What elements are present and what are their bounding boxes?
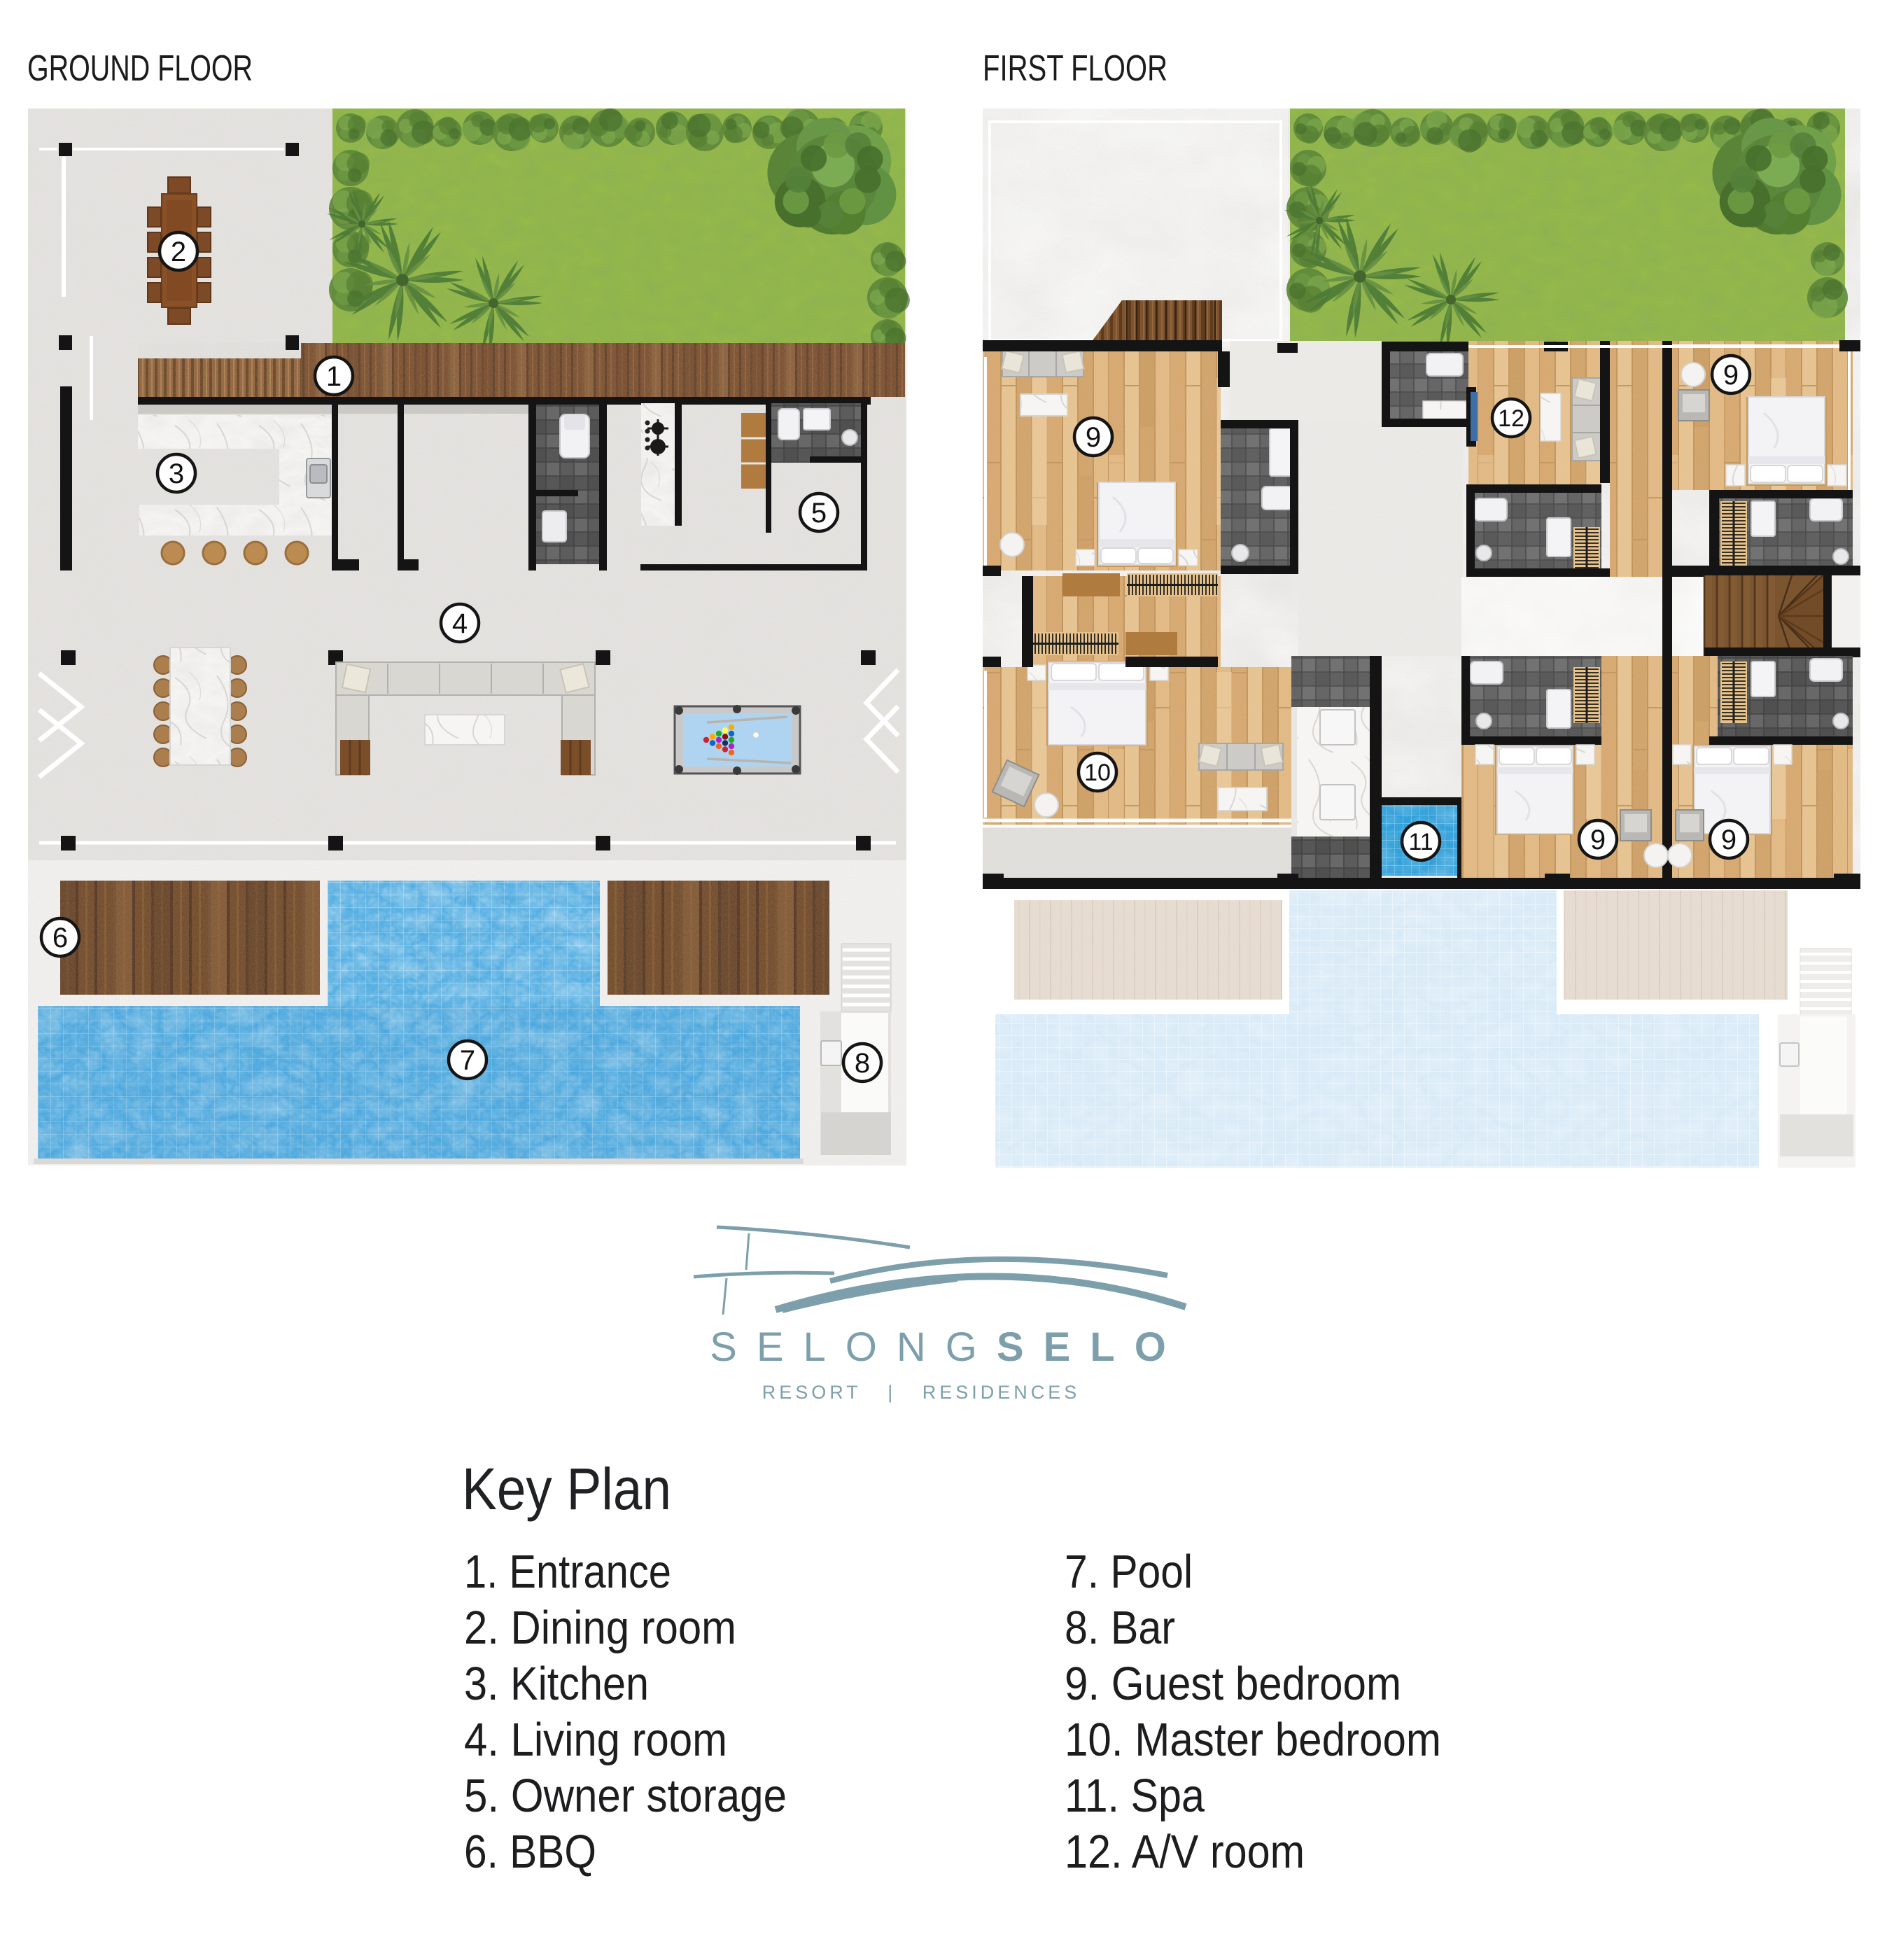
svg-text:2: 2 bbox=[171, 237, 186, 267]
svg-text:12. A/V room: 12. A/V room bbox=[1065, 1826, 1305, 1878]
svg-text:12: 12 bbox=[1498, 405, 1524, 432]
svg-text:5. Owner storage: 5. Owner storage bbox=[464, 1770, 787, 1822]
svg-text:9: 9 bbox=[1723, 360, 1739, 391]
svg-text:3: 3 bbox=[169, 458, 184, 489]
svg-text:RESORT | RESIDENCES: RESORT | RESIDENCES bbox=[762, 1382, 1081, 1403]
svg-text:6. BBQ: 6. BBQ bbox=[464, 1826, 596, 1878]
svg-text:11: 11 bbox=[1408, 829, 1433, 855]
svg-text:Key Plan: Key Plan bbox=[462, 1456, 671, 1522]
svg-text:9. Guest bedroom: 9. Guest bedroom bbox=[1065, 1658, 1401, 1710]
svg-text:10: 10 bbox=[1084, 759, 1111, 786]
svg-text:3. Kitchen: 3. Kitchen bbox=[464, 1658, 649, 1710]
svg-text:FIRST FLOOR: FIRST FLOOR bbox=[983, 48, 1167, 89]
svg-text:9: 9 bbox=[1590, 825, 1606, 855]
svg-text:1: 1 bbox=[326, 361, 342, 392]
svg-text:11. Spa: 11. Spa bbox=[1065, 1770, 1205, 1822]
svg-text:1. Entrance: 1. Entrance bbox=[464, 1546, 671, 1598]
svg-text:6: 6 bbox=[52, 923, 68, 953]
svg-text:4: 4 bbox=[452, 608, 468, 639]
svg-text:9: 9 bbox=[1086, 422, 1101, 453]
svg-text:2. Dining room: 2. Dining room bbox=[464, 1602, 736, 1654]
svg-text:4. Living room: 4. Living room bbox=[464, 1714, 727, 1766]
svg-text:8. Bar: 8. Bar bbox=[1065, 1602, 1175, 1654]
svg-text:10. Master bedroom: 10. Master bedroom bbox=[1065, 1714, 1441, 1766]
svg-text:7. Pool: 7. Pool bbox=[1065, 1546, 1193, 1598]
svg-text:7: 7 bbox=[460, 1045, 475, 1076]
svg-text:8: 8 bbox=[855, 1048, 870, 1079]
svg-text:GROUND FLOOR: GROUND FLOOR bbox=[27, 48, 253, 89]
svg-text:9: 9 bbox=[1721, 825, 1737, 855]
svg-text:SELONGSELO: SELONGSELO bbox=[710, 1324, 1186, 1370]
svg-text:5: 5 bbox=[811, 498, 827, 528]
